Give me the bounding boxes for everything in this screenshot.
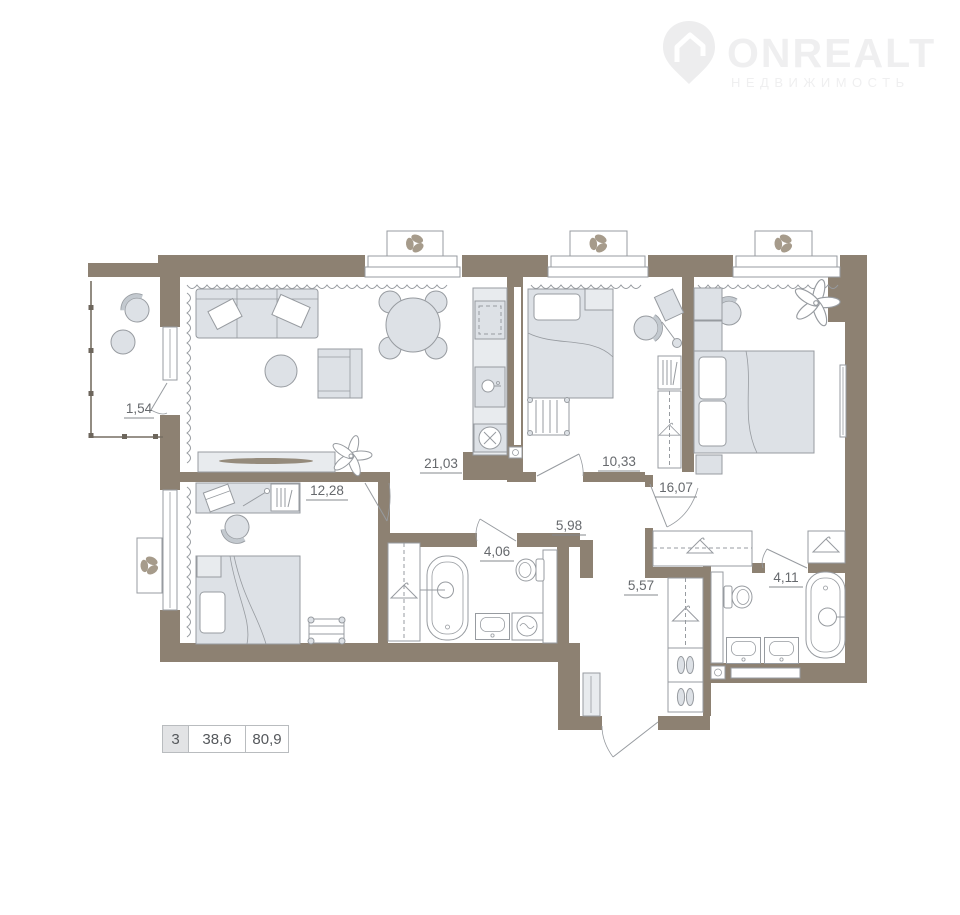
wall-duct-slot: [514, 287, 521, 445]
pillow: [699, 357, 726, 399]
ac-unit-icon: [570, 231, 627, 256]
pillow: [699, 401, 726, 446]
balcony-table: [111, 330, 135, 354]
door-bathroom-small: [476, 519, 516, 541]
shoe-cabinet: [668, 648, 703, 712]
radiator: [583, 673, 600, 716]
bedside-cabinet: [696, 455, 722, 474]
wardrobe-column: [388, 543, 420, 641]
living-room: [196, 289, 447, 477]
total-area: 80,9: [245, 725, 289, 753]
bedroom-left: [196, 483, 345, 644]
kitchen: [473, 288, 507, 455]
balcony-chair: [117, 289, 155, 327]
washing-machine: [474, 424, 507, 452]
chair: [218, 511, 254, 548]
floorplan-page: ONREALT НЕДВИЖИМОСТЬ: [0, 0, 960, 910]
chair: [634, 315, 663, 341]
wardrobe: [694, 288, 722, 320]
dining-set: [379, 291, 447, 359]
brand-name: ONREALT: [727, 30, 936, 76]
door-bedroom-middle: [537, 454, 583, 476]
plant-icon: [331, 435, 372, 478]
tv-stand: [198, 452, 335, 472]
room-area-label-corridor: 5,57: [628, 578, 654, 593]
bed: [528, 289, 613, 398]
bench: [308, 617, 345, 644]
door-bathroom-master: [762, 549, 807, 568]
ac-unit-icon: [387, 231, 443, 256]
room-area-label-bedroom-master: 16,07: [659, 480, 693, 495]
room-area-label-hallway: 5,98: [556, 518, 582, 533]
ac-unit-icon: [755, 231, 812, 256]
shelf-unit: [654, 289, 683, 468]
balcony-door: [151, 383, 167, 414]
room-area-label-living: 21,03: [424, 456, 458, 471]
double-bed: [694, 351, 814, 453]
rooms-count: 3: [162, 725, 189, 753]
crib: [528, 398, 570, 436]
apartment-summary: 3 38,6 80,9: [162, 725, 289, 753]
room-area-label-bedroom-left: 12,28: [310, 483, 344, 498]
armchair: [318, 349, 362, 398]
ottoman: [265, 355, 297, 387]
tv: [219, 458, 313, 464]
room-area-label-bedroom-middle: 10,33: [602, 454, 636, 469]
onrealt-pin-icon: [663, 21, 715, 84]
entrance-door: [602, 722, 658, 757]
pillow: [200, 592, 225, 633]
room-area-label-balcony: 1,54: [126, 401, 153, 416]
bedroom-master: [694, 278, 840, 474]
room-area-label-bathroom-master: 4,11: [773, 570, 798, 585]
bedroom-middle: [528, 289, 684, 468]
brand-tagline: НЕДВИЖИМОСТЬ: [731, 75, 910, 90]
wall-niche: [731, 668, 800, 678]
bathroom-small: [420, 556, 544, 640]
toilet: [516, 559, 544, 581]
stove: [475, 301, 505, 339]
desk: [196, 483, 300, 513]
bathroom-master: [724, 572, 845, 664]
kitchen-sink: [475, 367, 505, 407]
sink: [476, 614, 510, 640]
floorplan-svg: ONREALT НЕДВИЖИМОСТЬ: [0, 0, 960, 910]
washing-machine: [512, 613, 543, 640]
pillow: [534, 294, 580, 320]
toilet: [724, 586, 752, 608]
wardrobe: [694, 321, 722, 354]
bed: [196, 556, 300, 644]
bathtub: [427, 556, 468, 640]
bathtub: [806, 572, 845, 658]
ac-unit-icon: [137, 538, 162, 593]
sink: [727, 638, 761, 664]
dining-table: [386, 298, 440, 352]
onrealt-logo: ONREALT НЕДВИЖИМОСТЬ: [663, 21, 936, 90]
living-area: 38,6: [188, 725, 246, 753]
sink: [765, 638, 799, 664]
room-area-label-bathroom: 4,06: [484, 544, 510, 559]
